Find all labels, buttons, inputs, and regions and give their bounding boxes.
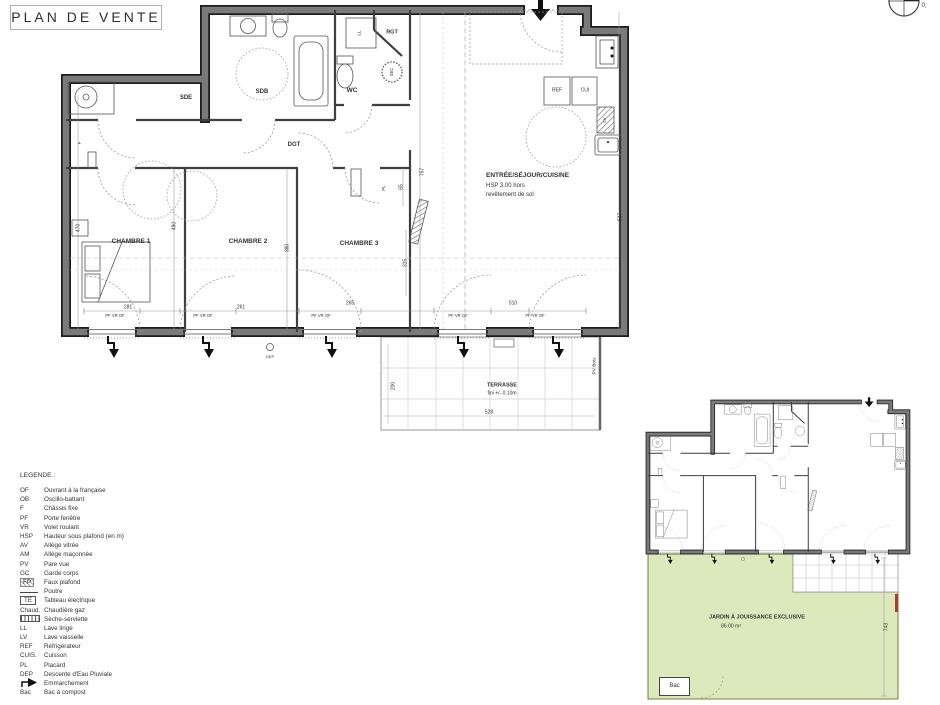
room-label-rgt: RGT bbox=[386, 30, 398, 36]
dim-510: 510 bbox=[509, 302, 517, 307]
legend-label: Châssis fixe bbox=[44, 505, 240, 512]
room-label-chambre3: CHAMBRE 3 bbox=[340, 241, 379, 248]
legend-label: Poutre bbox=[44, 588, 240, 595]
room-label-sejour: ENTRÉE/SÉJOUR/CUISINE bbox=[486, 173, 569, 180]
dim-65: 65 bbox=[400, 184, 405, 190]
garden-red-mark bbox=[895, 594, 898, 612]
legend-row-te: TETableau électrique bbox=[20, 596, 240, 605]
legend-row-av: AVAllège vitrée bbox=[20, 541, 240, 550]
legend-label: Allège vitrée bbox=[44, 542, 240, 549]
dim-281: 281 bbox=[124, 306, 132, 311]
legend-label: Tableau électrique bbox=[44, 597, 240, 604]
legend-row-ob: OBOscillo-battant bbox=[20, 495, 240, 504]
room-label-wc: WC bbox=[347, 88, 358, 95]
terrace-label: TERRASSE bbox=[487, 383, 517, 389]
legend-abbr: GC bbox=[20, 570, 44, 577]
legend-label: Pare vue bbox=[44, 561, 240, 568]
legend-abbr: Bac bbox=[20, 689, 44, 696]
dim-743: 743 bbox=[885, 623, 890, 631]
dim-537: 537 bbox=[619, 213, 624, 221]
legend-abbr: CUIS. bbox=[20, 652, 44, 659]
legend-abbr: AV bbox=[20, 542, 44, 549]
legend-abbr: AM bbox=[20, 551, 44, 558]
poutre-line-symbol bbox=[20, 592, 38, 593]
legend-row-lv: LVLave vaisselle bbox=[20, 633, 240, 642]
legend-label: Réfrigérateur bbox=[44, 643, 240, 650]
legend-label: Chaudière gaz bbox=[44, 607, 240, 614]
dim-490: 490 bbox=[173, 222, 178, 230]
legend-label: Sèche-serviette bbox=[44, 616, 240, 623]
legend-label: Faux plafond bbox=[44, 579, 240, 586]
interior-partitions bbox=[66, 10, 410, 332]
legend-label: Porte fenêtre bbox=[44, 515, 240, 522]
dim-315: 315 bbox=[404, 259, 409, 267]
legend-heading: LEGENDE : bbox=[20, 472, 240, 486]
legend: LEGENDE : OFOuvrant à la française OBOsc… bbox=[20, 472, 240, 697]
room-label-sdb: SDB bbox=[256, 89, 269, 95]
legend-label: Allège maçonnée bbox=[44, 551, 240, 558]
legend-row-seche: Sèche-serviette bbox=[20, 615, 240, 624]
legend-abbr: HSP bbox=[20, 533, 44, 540]
refrigerateur-label: REF bbox=[552, 89, 562, 94]
tableau-electrique-symbol: TE bbox=[20, 596, 36, 605]
legend-label: Hauteur sous plafond (en m) bbox=[44, 533, 240, 540]
page-title: PLAN DE VENTE bbox=[10, 5, 162, 30]
legend-abbr: Chaud. bbox=[20, 607, 44, 614]
room-label-chambre2: CHAMBRE 2 bbox=[229, 239, 268, 246]
fixtures bbox=[68, 14, 621, 302]
dep-label: DEP bbox=[266, 355, 274, 359]
plan-de-vente-page: PLAN DE VENTE 0, SDE SDB WC RGT DGT CHAM… bbox=[0, 0, 940, 705]
key-plan-copy bbox=[648, 397, 908, 564]
legend-abbr: LV bbox=[20, 634, 44, 641]
dim-757: 757 bbox=[421, 168, 426, 176]
window-label-2: PF VR OF bbox=[193, 314, 212, 318]
radiator bbox=[409, 199, 428, 244]
legend-row-dep: DEPDescente d'Eau Pluviale bbox=[20, 670, 240, 679]
lave-linge-label: LL bbox=[359, 30, 364, 35]
sejour-hsp-note2: revêtement de sol bbox=[486, 192, 534, 198]
legend-row-pv: PVPare vue bbox=[20, 560, 240, 569]
pv-bois-label: PV Bois bbox=[594, 357, 599, 374]
compost-bin-box: Bac bbox=[659, 677, 690, 696]
entrance-arrow bbox=[531, 0, 550, 21]
seche-serviette-label: SEC bbox=[390, 68, 394, 77]
faux-plafond-zone bbox=[470, 12, 562, 64]
legend-label: Descente d'Eau Pluviale bbox=[44, 671, 240, 678]
window-label-3: PF VR OF bbox=[311, 314, 330, 318]
legend-abbr: PF bbox=[20, 515, 44, 522]
legend-row-of: OFOuvrant à la française bbox=[20, 486, 240, 495]
garden-label: JARDIN À JOUISSANCE EXCLUSIVE bbox=[709, 615, 805, 621]
legend-row-cuis: CUIS.Cuisson bbox=[20, 651, 240, 660]
legend-row-pf: PFPorte fenêtre bbox=[20, 514, 240, 523]
legend-label: Volet roulant bbox=[44, 524, 240, 531]
dep-symbol bbox=[267, 344, 274, 351]
legend-row-ll: LLLave linge bbox=[20, 624, 240, 633]
legend-abbr: OB bbox=[20, 496, 44, 503]
window-label-5: PF VR OF bbox=[525, 314, 544, 318]
legend-abbr: LL bbox=[20, 625, 44, 632]
legend-row-emmarchement: Emmarchement bbox=[20, 679, 240, 688]
sejour-hsp-note: HSP 3.00 hors bbox=[486, 183, 525, 189]
window-label-1: PF VR OF bbox=[105, 314, 124, 318]
legend-row-bac: BacBac à compost bbox=[20, 688, 240, 697]
legend-row-ref: REFRéfrigérateur bbox=[20, 642, 240, 651]
legend-label: Garde corps bbox=[44, 570, 240, 577]
legend-row-chaud: Chaud.Chaudière gaz bbox=[20, 605, 240, 614]
window-label-4: PF VR OF bbox=[448, 314, 467, 318]
seche-serviette-legend-symbol bbox=[20, 615, 40, 622]
legend-label: Lave vaisselle bbox=[44, 634, 240, 641]
legend-label: Bac à compost bbox=[44, 689, 240, 696]
room-label-chambre1: CHAMBRE 1 bbox=[112, 239, 151, 246]
legend-label: Emmarchement bbox=[44, 680, 240, 687]
dim-470: 470 bbox=[77, 224, 82, 232]
legend-row-f: FChâssis fixe bbox=[20, 504, 240, 513]
legend-label: Cuisson bbox=[44, 652, 240, 659]
dim-200: 200 bbox=[392, 382, 397, 390]
room-label-dgt: DGT bbox=[288, 142, 301, 148]
level-marker-symbol bbox=[889, 0, 919, 16]
dim-528: 528 bbox=[485, 411, 493, 416]
legend-row-hsp: HSPHauteur sous plafond (en m) bbox=[20, 532, 240, 541]
faux-plafond-symbol: FP bbox=[20, 578, 34, 587]
cuisson-label: CUI bbox=[581, 89, 590, 94]
dim-261: 261 bbox=[237, 306, 245, 311]
legend-label: Ouvrant à la française bbox=[44, 487, 240, 494]
legend-label: Oscillo-battant bbox=[44, 496, 240, 503]
terrace-finish-note: fini +/- 0.10m bbox=[487, 392, 516, 397]
legend-abbr: PL bbox=[20, 662, 44, 669]
legend-row-gc: GCGarde corps bbox=[20, 569, 240, 578]
doormat bbox=[494, 339, 514, 347]
legend-abbr: PV bbox=[20, 561, 44, 568]
room-label-sde: SDE bbox=[180, 95, 192, 101]
garden-area-value: 86.00 m² bbox=[721, 625, 741, 630]
legend-label: Lave linge bbox=[44, 625, 240, 632]
placard-label: PL bbox=[382, 185, 387, 191]
legend-abbr: VR bbox=[20, 524, 44, 531]
legend-abbr: F bbox=[20, 505, 44, 512]
lave-vaisselle-label: LV bbox=[603, 117, 608, 122]
legend-abbr: OF bbox=[20, 487, 44, 494]
emmarchement-symbol bbox=[20, 677, 40, 688]
dim-380: 380 bbox=[286, 244, 291, 252]
legend-row-poutre: Poutre bbox=[20, 587, 240, 596]
legend-row-fp: FPFaux plafond bbox=[20, 578, 240, 587]
legend-row-pl: PLPlacard bbox=[20, 661, 240, 670]
legend-row-am: AMAllège maçonnée bbox=[20, 550, 240, 559]
legend-row-vr: VRVolet roulant bbox=[20, 523, 240, 532]
legend-abbr: REF bbox=[20, 643, 44, 650]
legend-label: Placard bbox=[44, 662, 240, 669]
dim-265: 265 bbox=[346, 302, 354, 307]
fixed-window-label: F bbox=[78, 142, 83, 145]
level-marker-label: 0, bbox=[921, 3, 926, 9]
